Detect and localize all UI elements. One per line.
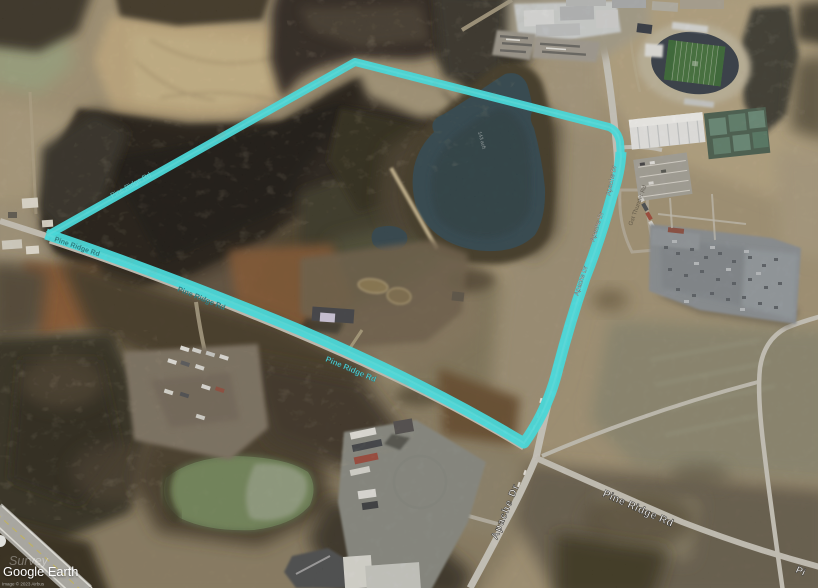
- svg-text:Google Earth: Google Earth: [3, 564, 78, 579]
- svg-text:Image © 2023 Airbus: Image © 2023 Airbus: [2, 581, 45, 587]
